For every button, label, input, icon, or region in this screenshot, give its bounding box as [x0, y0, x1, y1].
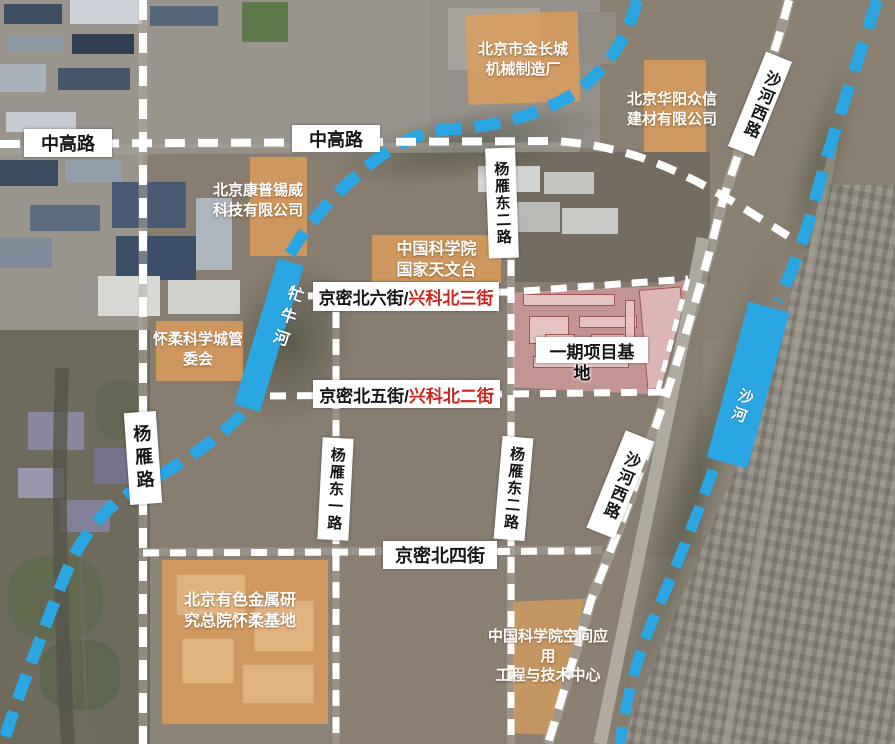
road-label-text: 中高路 — [41, 130, 95, 156]
site-label-nonferrous: 北京有色金属研 究总院怀柔基地 — [176, 591, 304, 633]
road-label-jingmi-bei6: 京密北六街/兴科北三街 — [313, 282, 499, 311]
site-label-observatory: 中国科学院 国家天文台 — [372, 240, 501, 282]
site-label-committee: 怀柔科学城管 委会 — [146, 330, 250, 369]
road-label-yangyan: 杨雁路 — [124, 411, 162, 505]
road-label-text: 杨雁东二路 — [499, 445, 527, 532]
road-label-text-red: 兴科北二街 — [409, 382, 494, 407]
road-label-zhonggao-left: 中高路 — [24, 129, 112, 157]
river-shahe-wide — [727, 307, 769, 463]
road-zhonggaolu — [0, 141, 788, 236]
river-shahe-upper — [778, 0, 877, 301]
site-label-kangpu: 北京康普锡威 科技有限公司 — [208, 181, 308, 220]
road-label-text: 杨雁东二路 — [490, 160, 514, 246]
project-base-label-line2: 地 — [570, 359, 594, 379]
site-label-space-center: 中国科学院空间应 用 工程与技术中心 — [478, 627, 618, 686]
river-mangniu-lower — [3, 414, 242, 744]
site-label-huayang: 北京华阳众信 建材有限公司 — [618, 90, 726, 129]
road-label-yangyan-dong1: 杨雁东一路 — [317, 437, 353, 540]
road-label-text: 京密北四街 — [395, 542, 485, 568]
road-label-text: 京密北六街/ — [319, 284, 409, 309]
road-label-text: 中高路 — [309, 126, 363, 152]
river-shahe-lower — [620, 470, 713, 744]
road-label-zhonggao-right: 中高路 — [292, 125, 380, 152]
road-label-yangyan-dong2-top: 杨雁东二路 — [485, 148, 519, 259]
road-label-text: 京密北五街/ — [319, 382, 409, 407]
road-label-jingmi-bei5: 京密北五街/兴科北二街 — [313, 380, 500, 408]
road-label-text-red: 兴科北三街 — [408, 284, 493, 309]
road-jingmi-bei4 — [143, 551, 602, 553]
site-label-jinchangcheng: 北京市金长城 机械制造厂 — [468, 40, 578, 79]
road-label-jingmi-bei4: 京密北四街 — [383, 541, 497, 569]
road-label-text: 杨雁东一路 — [323, 446, 348, 532]
project-area-border — [657, 279, 688, 394]
satellite-map: 中高路 中高路 沙河西路 杨雁东二路 京密北六街/兴科北三街 京密北五街/兴科北… — [0, 0, 895, 744]
road-label-text: 杨雁路 — [128, 423, 159, 494]
project-base-text: 地 — [574, 364, 591, 383]
